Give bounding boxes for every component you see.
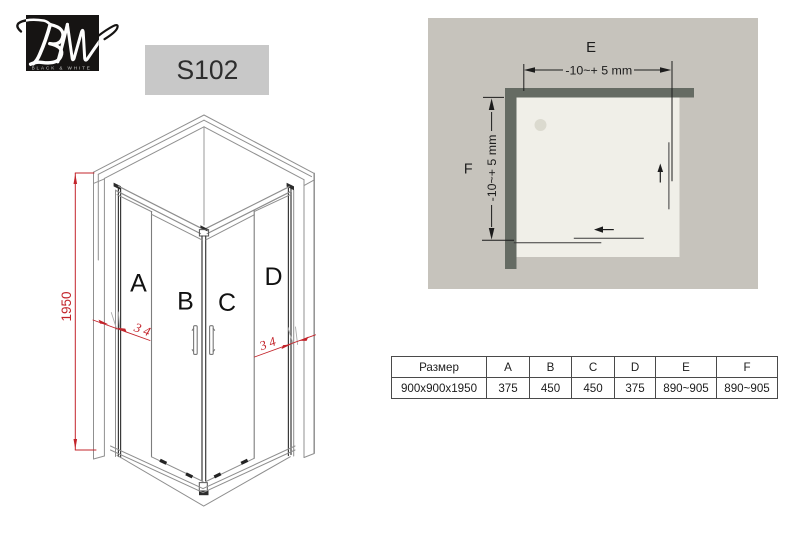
svg-text:1950: 1950 <box>59 291 74 321</box>
svg-text:3 4: 3 4 <box>131 319 153 339</box>
svg-text:C: C <box>218 289 236 317</box>
svg-text:F: F <box>464 162 473 178</box>
svg-text:B: B <box>177 288 194 316</box>
svg-text:-10~+ 5 mm: -10~+ 5 mm <box>565 64 632 78</box>
svg-text:E: E <box>586 40 596 56</box>
svg-text:BLACK & WHITE: BLACK & WHITE <box>32 65 92 70</box>
svg-text:-10~+ 5 mm: -10~+ 5 mm <box>485 135 499 202</box>
svg-text:D: D <box>264 263 282 291</box>
svg-text:A: A <box>130 270 147 298</box>
svg-text:3 4: 3 4 <box>256 333 278 353</box>
